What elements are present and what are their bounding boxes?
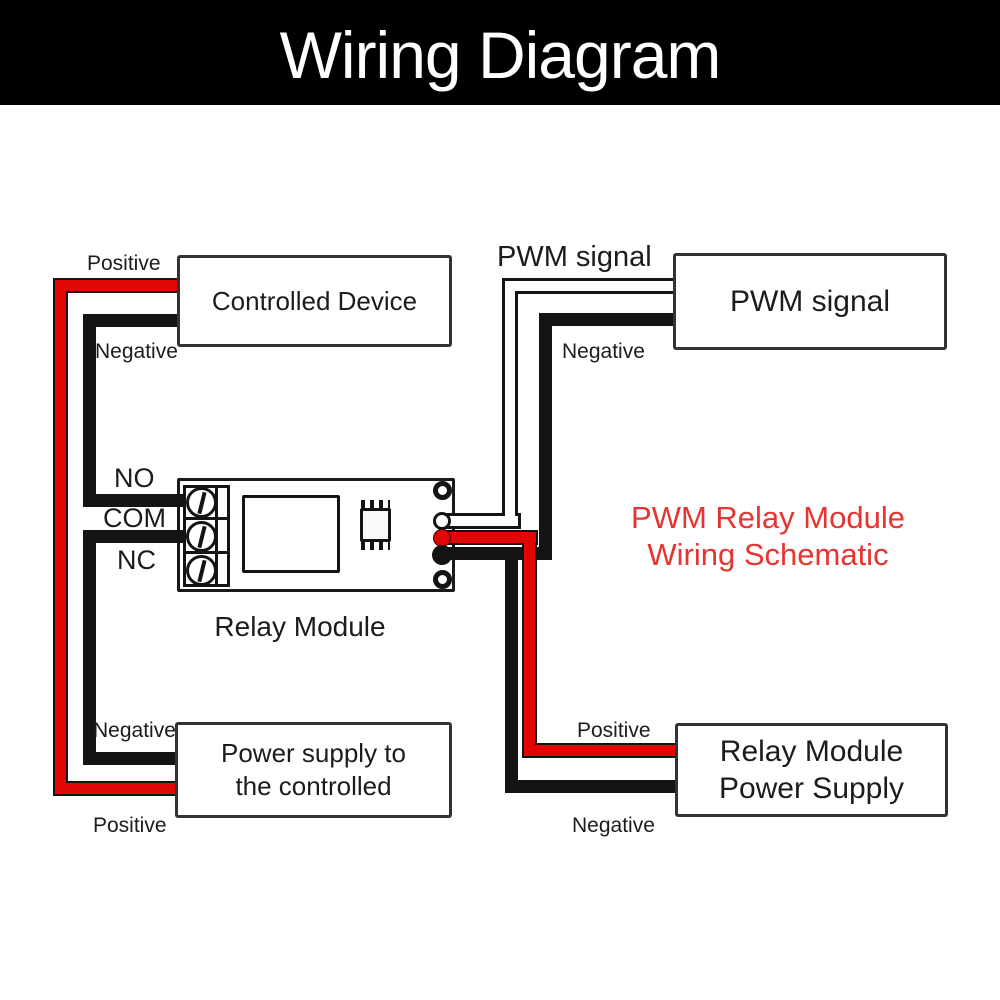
controlled-power-supply-label-line2: the controlled	[235, 770, 391, 803]
label-relay-module: Relay Module	[214, 611, 385, 643]
screw-slot-icon	[197, 491, 206, 513]
black-wire-segment	[505, 547, 518, 793]
controlled-power-supply-box: Power supply to the controlled	[175, 722, 452, 818]
wiring-diagram-canvas: Wiring Diagram Controlled Device PWM sig…	[0, 0, 1000, 1000]
negative-pin-icon	[432, 545, 452, 565]
white-wire-segment	[444, 516, 518, 526]
page-title: Wiring Diagram	[0, 0, 1000, 105]
screw-terminal-nc	[186, 555, 217, 586]
red-wire-segment	[524, 745, 682, 756]
screw-slot-icon	[197, 559, 206, 581]
red-wire-segment	[55, 783, 181, 794]
label-controlled-supply-positive: Positive	[93, 814, 167, 838]
white-wire-segment	[505, 281, 515, 524]
ic-chip-icon	[360, 508, 391, 542]
schematic-title-line1: PWM Relay Module	[631, 499, 905, 536]
white-wire-segment	[505, 281, 680, 291]
label-controlled-supply-negative: Negative	[93, 719, 176, 743]
black-wire-segment	[539, 313, 680, 326]
black-wire-segment	[83, 314, 183, 327]
label-pwm-negative: Negative	[562, 340, 645, 364]
relay-component	[242, 495, 340, 573]
ic-chip-pins-icon	[361, 542, 390, 550]
label-terminal-no: NO	[114, 463, 155, 494]
label-terminal-com: COM	[103, 503, 166, 534]
red-wire-segment	[444, 532, 536, 543]
black-wire-segment	[539, 313, 552, 560]
black-wire-segment	[505, 780, 682, 793]
schematic-title: PWM Relay Module Wiring Schematic	[631, 499, 905, 573]
terminal-divider	[183, 517, 230, 520]
relay-power-supply-label-line2: Power Supply	[719, 770, 904, 807]
red-wire-segment	[55, 280, 183, 291]
controlled-device-box: Controlled Device	[177, 255, 452, 347]
relay-power-supply-label-line1: Relay Module	[720, 733, 903, 770]
label-terminal-nc: NC	[117, 545, 156, 576]
black-wire-segment	[444, 547, 552, 560]
screw-slot-icon	[197, 525, 206, 547]
signal-pin-icon	[433, 512, 451, 530]
label-controlled-negative: Negative	[95, 340, 178, 364]
label-controlled-positive: Positive	[87, 252, 161, 276]
mounting-hole-icon	[433, 481, 452, 500]
red-wire-segment	[55, 280, 66, 794]
terminal-divider	[183, 551, 230, 554]
screw-terminal-no	[186, 487, 217, 518]
schematic-title-line2: Wiring Schematic	[631, 536, 905, 573]
relay-power-supply-box: Relay Module Power Supply	[675, 723, 948, 817]
controlled-power-supply-label-line1: Power supply to	[221, 737, 406, 770]
label-relay-supply-positive: Positive	[577, 719, 651, 743]
red-wire-segment	[524, 532, 535, 756]
mounting-hole-icon	[433, 570, 452, 589]
black-wire-segment	[83, 752, 182, 765]
controlled-device-label: Controlled Device	[212, 286, 417, 317]
screw-terminal-com	[186, 521, 217, 552]
pwm-signal-box-label: PWM signal	[730, 285, 890, 319]
label-relay-supply-negative: Negative	[572, 814, 655, 838]
label-pwm-signal-wire: PWM signal	[497, 241, 652, 274]
ic-chip-pins-icon	[361, 500, 390, 508]
pwm-signal-box: PWM signal	[673, 253, 947, 350]
